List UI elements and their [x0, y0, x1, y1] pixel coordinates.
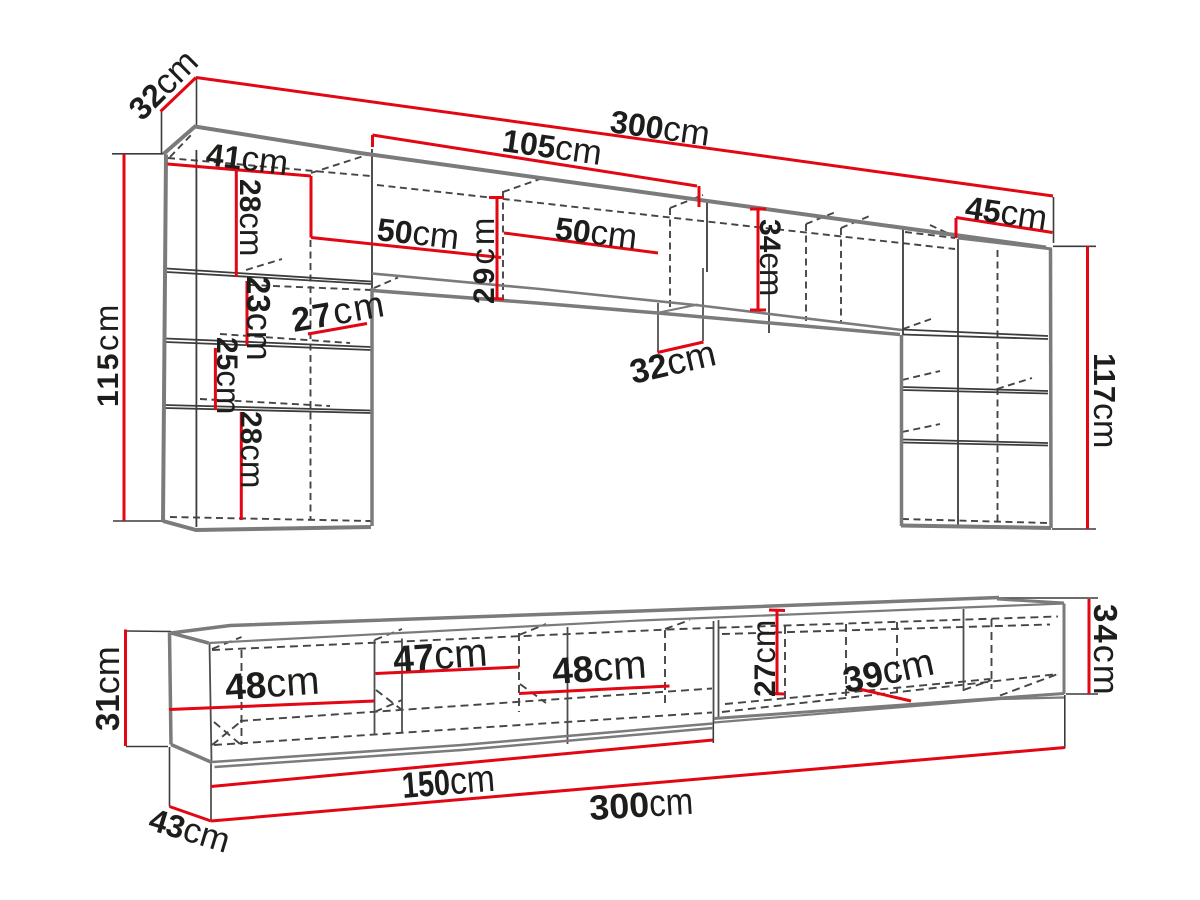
svg-text:48cm: 48cm: [551, 642, 648, 692]
svg-text:31cm: 31cm: [86, 646, 127, 731]
svg-text:47cm: 47cm: [392, 630, 489, 680]
svg-text:115cm: 115cm: [88, 302, 125, 407]
svg-text:150cm: 150cm: [400, 758, 496, 807]
svg-text:27cm: 27cm: [745, 620, 782, 697]
svg-text:48cm: 48cm: [224, 658, 321, 708]
svg-text:34cm: 34cm: [753, 219, 790, 296]
svg-text:23cm: 23cm: [239, 276, 280, 361]
svg-text:29cm: 29cm: [464, 215, 501, 304]
svg-text:300cm: 300cm: [588, 781, 694, 829]
svg-text:28cm: 28cm: [234, 411, 271, 488]
svg-text:34cm: 34cm: [1086, 604, 1127, 697]
svg-text:117cm: 117cm: [1086, 353, 1124, 448]
svg-text:25cm: 25cm: [210, 337, 247, 414]
svg-text:28cm: 28cm: [233, 179, 270, 256]
